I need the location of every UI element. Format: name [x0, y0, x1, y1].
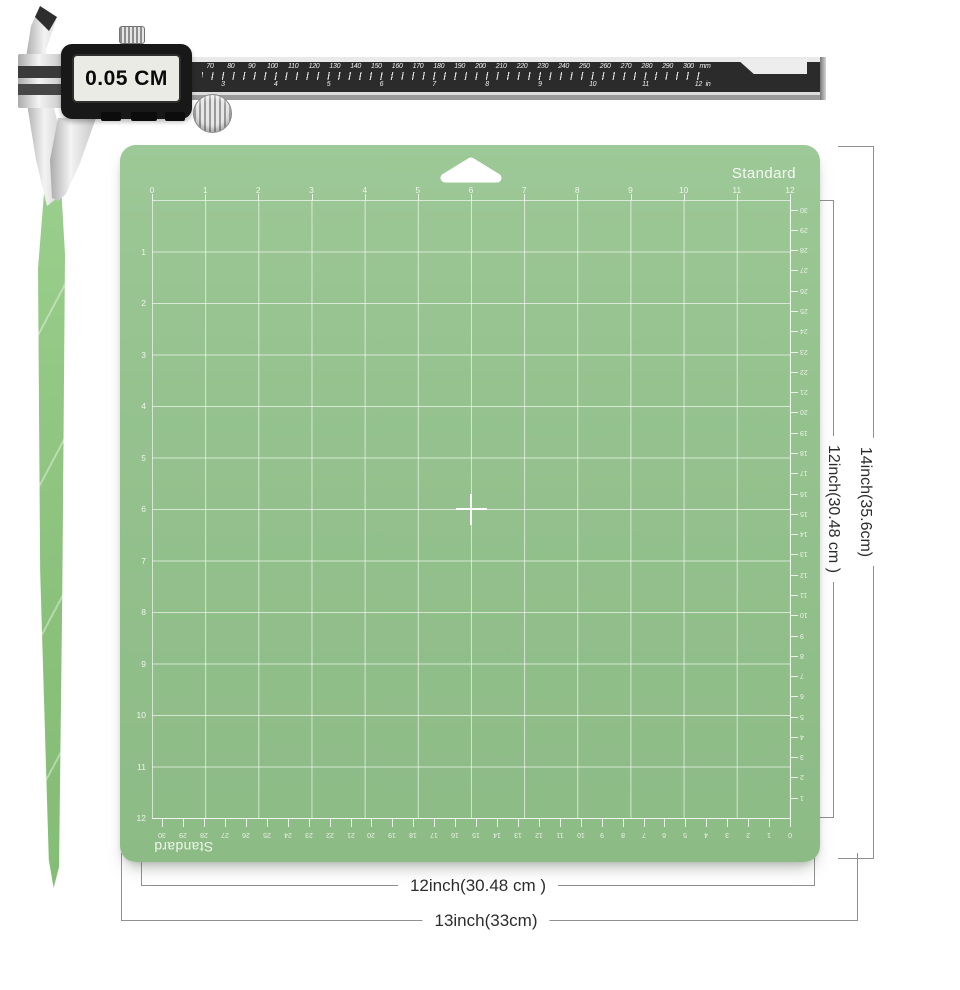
- beam-inch-number: 4: [274, 81, 278, 88]
- grid-top-tick: [258, 194, 259, 200]
- right-ruler-tick: [791, 737, 798, 738]
- right-ruler-number: 23: [800, 348, 808, 355]
- right-ruler-number: 10: [800, 611, 808, 618]
- right-ruler-tick: [791, 372, 798, 373]
- right-ruler-number: 20: [800, 408, 808, 415]
- beam-mm-number: 100: [267, 63, 278, 70]
- right-ruler-tick: [791, 453, 798, 454]
- right-ruler-number: 11: [800, 591, 807, 598]
- bottom-ruler-number: 9: [600, 831, 604, 838]
- beam-mm-number: 280: [641, 63, 652, 70]
- bottom-ruler-tick: [225, 819, 226, 827]
- housing-button: [101, 112, 121, 121]
- mat-grid: [152, 200, 791, 819]
- right-ruler-number: 28: [800, 246, 808, 253]
- right-ruler-number: 25: [800, 307, 808, 314]
- beam-mm-number: 190: [454, 63, 465, 70]
- right-ruler-number: 22: [800, 368, 808, 375]
- bottom-ruler-tick: [204, 819, 205, 827]
- beam-mm-number: 210: [496, 63, 507, 70]
- mat-width-label: 13inch(33cm): [423, 911, 550, 931]
- bottom-ruler-number: 6: [662, 831, 666, 838]
- beam-inch-unit: in: [706, 81, 711, 88]
- right-ruler-tick: [791, 494, 798, 495]
- bottom-ruler-tick: [371, 819, 372, 827]
- right-ruler-tick: [791, 311, 798, 312]
- grid-top-tick: [205, 194, 206, 200]
- beam-mm-number: 270: [621, 63, 632, 70]
- beam-mm-number: 300: [683, 63, 694, 70]
- right-ruler-tick: [791, 230, 798, 231]
- right-ruler-tick: [791, 473, 798, 474]
- bottom-ruler-number: 29: [179, 831, 187, 838]
- housing-button: [165, 112, 185, 121]
- grid-top-tick: [152, 194, 153, 200]
- grid-left-number: 7: [126, 557, 146, 566]
- grid-top-tick: [365, 194, 366, 200]
- right-ruler-number: 13: [800, 550, 808, 557]
- bottom-ruler-number: 0: [788, 831, 792, 838]
- beam-mm-number: 130: [329, 63, 340, 70]
- beam-mm-number: 140: [350, 63, 361, 70]
- product-image: mm in 7080901001101201301401501601701801…: [0, 0, 960, 990]
- grid-left-number: 5: [126, 454, 146, 463]
- bottom-ruler-number: 15: [472, 831, 480, 838]
- right-ruler-number: 16: [800, 490, 808, 497]
- grid-top-tick: [524, 194, 525, 200]
- bottom-ruler-tick: [727, 819, 728, 827]
- grid-top-tick: [312, 194, 313, 200]
- right-ruler-tick: [791, 575, 798, 576]
- right-ruler-tick: [791, 595, 798, 596]
- bottom-ruler-number: 18: [409, 831, 417, 838]
- beam-notch: [737, 59, 807, 74]
- housing-button: [131, 112, 157, 121]
- bottom-ruler-number: 20: [367, 831, 375, 838]
- hanger-hole: [435, 156, 507, 184]
- right-ruler-tick: [791, 798, 798, 799]
- bottom-ruler-number: 26: [242, 831, 250, 838]
- right-ruler-tick: [791, 514, 798, 515]
- right-ruler-tick: [791, 534, 798, 535]
- beam-mm-number: 200: [475, 63, 486, 70]
- standard-label-bottom: Standard: [154, 839, 213, 855]
- right-ruler-number: 29: [800, 226, 808, 233]
- right-ruler-tick: [791, 331, 798, 332]
- bottom-ruler-number: 3: [725, 831, 729, 838]
- right-ruler-tick: [791, 656, 798, 657]
- thumb-roller: [193, 94, 232, 133]
- grid-left-number: 8: [126, 608, 146, 617]
- right-ruler-tick: [791, 352, 798, 353]
- beam-mm-number: 240: [558, 63, 569, 70]
- right-ruler-tick: [791, 717, 798, 718]
- right-ruler-tick: [791, 696, 798, 697]
- bottom-ruler-tick: [581, 819, 582, 827]
- bottom-ruler-number: 2: [746, 831, 750, 838]
- beam-inch-number: 9: [538, 81, 542, 88]
- grid-top-tick: [737, 194, 738, 200]
- right-ruler-tick: [791, 433, 798, 434]
- right-ruler-number: 1: [800, 794, 804, 801]
- bottom-ruler-number: 27: [221, 831, 229, 838]
- beam-inch-number: 12: [695, 81, 702, 88]
- bottom-ruler-tick: [413, 819, 414, 827]
- beam-mm-number: 160: [392, 63, 403, 70]
- right-ruler-number: 24: [800, 327, 808, 334]
- center-crosshair: [470, 494, 472, 525]
- right-ruler-number: 26: [800, 287, 808, 294]
- bottom-ruler-tick: [518, 819, 519, 827]
- bottom-ruler-tick: [330, 819, 331, 827]
- beam-mm-number: 70: [206, 63, 213, 70]
- standard-label-top: Standard: [732, 165, 796, 182]
- grid-top-tick: [684, 194, 685, 200]
- mat-height-label: 14inch(35.6cm): [855, 438, 875, 566]
- right-ruler-number: 21: [800, 388, 808, 395]
- beam-mm-unit: mm: [699, 63, 710, 70]
- right-ruler-tick: [791, 412, 798, 413]
- caliper-head-block: [18, 54, 64, 108]
- grid-left-number: 2: [126, 299, 146, 308]
- beam-inch-number: 3: [221, 81, 225, 88]
- bottom-ruler-tick: [685, 819, 686, 827]
- grid-height-label: 12inch(30.48 cm ): [823, 436, 843, 582]
- bottom-ruler-number: 19: [388, 831, 396, 838]
- beam-inch-number: 6: [380, 81, 384, 88]
- right-ruler-number: 15: [800, 510, 808, 517]
- right-ruler-tick: [791, 777, 798, 778]
- bottom-ruler-number: 1: [767, 831, 771, 838]
- bottom-ruler-tick: [267, 819, 268, 827]
- bottom-ruler-number: 21: [347, 831, 355, 838]
- grid-left-number: 9: [126, 660, 146, 669]
- bottom-ruler-tick: [183, 819, 184, 827]
- caliper-display-screen: 0.05 CM: [72, 54, 181, 103]
- grid-top-tick: [418, 194, 419, 200]
- right-ruler-tick: [791, 636, 798, 637]
- head-stripe: [18, 66, 64, 78]
- grid-top-tick: [577, 194, 578, 200]
- caliper-reading: 0.05 CM: [85, 67, 168, 91]
- right-ruler-tick: [791, 757, 798, 758]
- grid-left-number: 3: [126, 351, 146, 360]
- right-ruler-tick: [791, 210, 798, 211]
- right-ruler-number: 2: [800, 773, 804, 780]
- bottom-ruler-number: 22: [326, 831, 334, 838]
- right-ruler-number: 27: [800, 266, 808, 273]
- grid-left-number: 6: [126, 505, 146, 514]
- right-ruler-number: 5: [800, 713, 804, 720]
- grid-top-tick: [631, 194, 632, 200]
- right-ruler-number: 30: [800, 206, 808, 213]
- beam-inch-number: 11: [642, 81, 649, 88]
- bottom-ruler-tick: [664, 819, 665, 827]
- beam-inch-number: 8: [485, 81, 489, 88]
- beam-mm-number: 220: [517, 63, 528, 70]
- beam-mm-number: 260: [600, 63, 611, 70]
- grid-left-number: 1: [126, 248, 146, 257]
- right-ruler-number: 3: [800, 753, 804, 760]
- bottom-ruler-number: 30: [158, 831, 166, 838]
- bottom-ruler-number: 25: [263, 831, 271, 838]
- right-ruler-number: 7: [800, 672, 804, 679]
- bottom-ruler-number: 5: [683, 831, 687, 838]
- bottom-ruler-tick: [309, 819, 310, 827]
- bottom-ruler-number: 13: [514, 831, 522, 838]
- bottom-ruler-tick: [539, 819, 540, 827]
- right-ruler-number: 4: [800, 733, 804, 740]
- beam-inch-number: 7: [432, 81, 436, 88]
- beam-mm-number: 170: [413, 63, 424, 70]
- bottom-ruler-number: 11: [556, 831, 563, 838]
- beam-inch-number: 5: [327, 81, 331, 88]
- mat-edge-strip: [38, 184, 65, 888]
- bottom-ruler-tick: [246, 819, 247, 827]
- bottom-ruler-tick: [602, 819, 603, 827]
- cutting-mat: Standard Standard 0123456789101112123456…: [120, 145, 820, 862]
- beam-mm-number: 120: [309, 63, 320, 70]
- grid-width-label: 12inch(30.48 cm ): [398, 876, 558, 896]
- right-ruler-tick: [791, 676, 798, 677]
- bottom-ruler-tick: [476, 819, 477, 827]
- bottom-ruler-tick: [790, 819, 791, 827]
- bottom-ruler-number: 14: [493, 831, 501, 838]
- grid-top-tick: [790, 194, 791, 200]
- bottom-ruler-number: 12: [535, 831, 543, 838]
- grid-left-number: 4: [126, 402, 146, 411]
- bottom-ruler-number: 23: [305, 831, 313, 838]
- right-ruler-number: 12: [800, 571, 808, 578]
- lock-screw: [119, 26, 145, 44]
- bottom-ruler-tick: [392, 819, 393, 827]
- right-ruler-number: 19: [800, 429, 808, 436]
- right-ruler-tick: [791, 554, 798, 555]
- head-stripe: [18, 84, 64, 95]
- bottom-ruler-tick: [351, 819, 352, 827]
- bottom-ruler-tick: [706, 819, 707, 827]
- movable-jaw: [50, 118, 96, 201]
- right-ruler-number: 6: [800, 692, 804, 699]
- right-ruler-tick: [791, 291, 798, 292]
- beam-tick-marks: [202, 72, 702, 80]
- bottom-ruler-tick: [434, 819, 435, 827]
- right-ruler-number: 8: [800, 652, 804, 659]
- bottom-ruler-tick: [769, 819, 770, 827]
- right-ruler-tick: [791, 270, 798, 271]
- right-ruler-number: 14: [800, 530, 808, 537]
- bottom-ruler-number: 10: [577, 831, 585, 838]
- bottom-ruler-number: 28: [200, 831, 208, 838]
- beam-mm-number: 80: [227, 63, 234, 70]
- caliper-display: 0.05 CM: [61, 44, 192, 119]
- beam-inch-number: 10: [589, 81, 596, 88]
- right-ruler-number: 9: [800, 632, 804, 639]
- grid-left-number: 11: [126, 763, 146, 772]
- beam-mm-number: 290: [662, 63, 673, 70]
- bottom-ruler-number: 8: [621, 831, 625, 838]
- bottom-ruler-tick: [162, 819, 163, 827]
- bottom-ruler-number: 17: [430, 831, 438, 838]
- right-ruler-tick: [791, 250, 798, 251]
- beam-mm-number: 250: [579, 63, 590, 70]
- bottom-ruler-tick: [455, 819, 456, 827]
- bottom-ruler-number: 24: [284, 831, 292, 838]
- right-ruler-tick: [791, 615, 798, 616]
- beam-mm-number: 90: [248, 63, 255, 70]
- bottom-ruler-number: 4: [704, 831, 708, 838]
- beam-mm-number: 150: [371, 63, 382, 70]
- right-ruler-tick: [791, 392, 798, 393]
- caliper-beam-scale: mm in 7080901001101201301401501601701801…: [160, 57, 826, 100]
- right-ruler-number: 17: [800, 469, 808, 476]
- grid-left-number: 10: [126, 711, 146, 720]
- bottom-ruler-tick: [748, 819, 749, 827]
- bottom-ruler-tick: [644, 819, 645, 827]
- bottom-ruler-tick: [623, 819, 624, 827]
- bottom-ruler-tick: [560, 819, 561, 827]
- bottom-ruler-tick: [497, 819, 498, 827]
- beam-end: [820, 57, 826, 100]
- grid-top-tick: [471, 194, 472, 200]
- beam-mm-number: 230: [537, 63, 548, 70]
- bottom-ruler-number: 16: [451, 831, 459, 838]
- grid-left-number: 12: [126, 814, 146, 823]
- bottom-ruler-tick: [288, 819, 289, 827]
- beam-mm-number: 180: [433, 63, 444, 70]
- beam-mm-number: 110: [288, 63, 298, 70]
- right-ruler-number: 18: [800, 449, 808, 456]
- bottom-ruler-number: 7: [642, 831, 646, 838]
